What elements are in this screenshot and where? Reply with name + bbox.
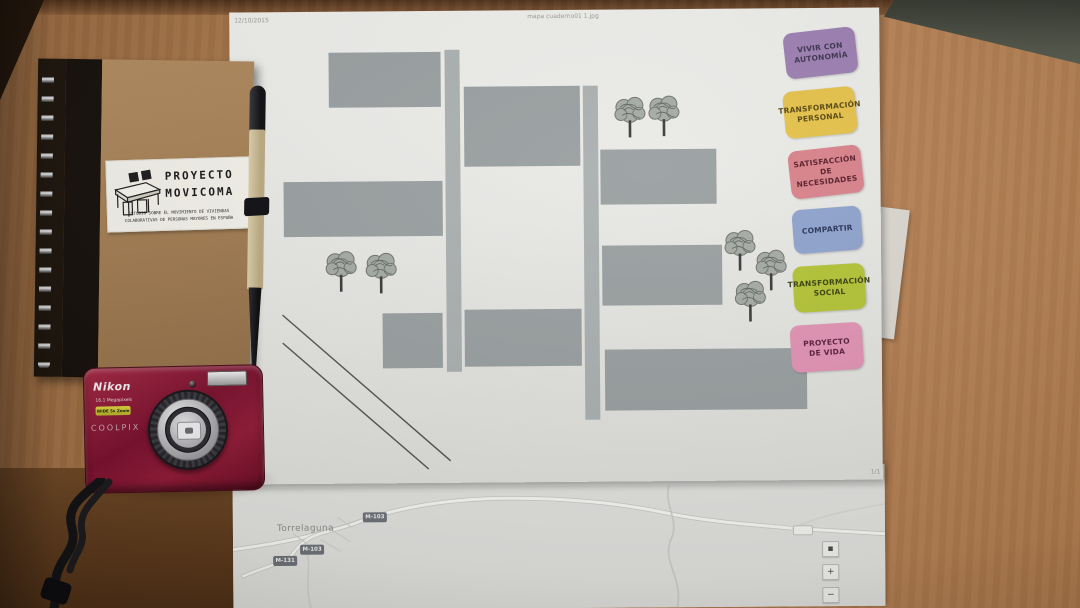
sticky-label-transformacion-personal: TRANSFORMACIÓN PERSONAL: [782, 86, 858, 140]
building-block: [600, 149, 716, 205]
printed-map-sheet: https://drive.google.com/drive/folders/0…: [233, 464, 886, 608]
railway-lines: [276, 309, 457, 475]
lens-aperture: [177, 421, 201, 439]
zoom-out-button-icon: −: [822, 587, 839, 603]
nikon-brand-logo: Nikon: [93, 380, 131, 394]
sticky-label-satisfaccion-de-necesidades: SATISFACCIÓN DE NECESIDADES: [787, 144, 865, 200]
photo-desk-scene: https://drive.google.com/drive/folders/0…: [0, 0, 1080, 608]
pen-clip: [244, 197, 269, 216]
lens-reflection: [185, 428, 193, 434]
pegman-button-icon: ▪: [822, 541, 839, 557]
map-roads-graphic: [233, 484, 886, 608]
street-strip: [583, 86, 601, 420]
print-header-filename: mapa cuaderno01 1.jpg: [527, 13, 599, 21]
nikon-coolpix-camera: Nikon 16.1 Megapixels WIDE 5x Zoom COOLP…: [83, 364, 266, 494]
camera-flash-icon: [207, 370, 247, 386]
print-header-date: 12/10/2015: [234, 17, 269, 24]
building-block: [602, 245, 722, 306]
sticky-label-proyecto-de-vida: PROYECTO DE VIDA: [789, 322, 864, 373]
building-block: [283, 181, 442, 237]
zoom-in-button-icon: +: [822, 564, 839, 580]
sticker-subtitle: ESTUDIO SOBRE EL MOVIMIENTO DE VIVIENDAS…: [112, 207, 246, 224]
road-badge-m103-2: M-103: [300, 545, 324, 555]
cover-black-band: [62, 59, 102, 377]
building-block: [464, 309, 581, 367]
printed-diagram-sheet: 12/10/2015 mapa cuaderno01 1.jpg 1/1: [229, 7, 883, 484]
tree-icon: [325, 248, 357, 294]
print-page-indicator: 1/1: [871, 468, 881, 475]
camera-strap: [26, 478, 141, 608]
megapixels-label: 16.1 Megapixels: [95, 398, 132, 404]
pen: [244, 85, 268, 370]
dark-floor-topright: [884, 0, 1080, 64]
spiral-binding: [34, 59, 66, 377]
tree-icon: [724, 226, 756, 272]
movicoma-sticker: PROYECTO MOVICOMA ESTUDIO SOBRE EL MOVIM…: [105, 156, 251, 232]
sticker-title: PROYECTO MOVICOMA: [165, 167, 235, 202]
sticky-label-compartir: COMPARTIR: [791, 205, 863, 254]
map-canvas: Torrelaguna M-103 M-103 M-131 ▪ + −: [233, 484, 886, 608]
tree-icon: [648, 92, 680, 138]
map-town-label: Torrelaguna: [277, 524, 334, 534]
road-badge-blank: [793, 525, 813, 535]
sticky-label-transformacion-social: TRANSFORMACIÓN SOCIAL: [792, 263, 867, 313]
camera-lens-icon: [147, 389, 229, 471]
spiral-notebook: PROYECTO MOVICOMA ESTUDIO SOBRE EL MOVIM…: [34, 59, 254, 380]
spiral-coils-icon: [38, 67, 54, 369]
road-badge-m103: M-103: [363, 512, 387, 522]
tree-icon: [365, 249, 397, 295]
map-zoom-controls: ▪ + −: [822, 541, 839, 603]
sticky-label-vivir-con-autonomia: VIVIR CON AUTONOMÍA: [782, 26, 859, 80]
pen-cap: [249, 85, 266, 133]
building-block: [328, 52, 440, 108]
tree-icon: [614, 93, 646, 139]
coolpix-model-label: COOLPIX: [91, 423, 140, 433]
pen-tip: [246, 287, 263, 370]
tree-icon: [734, 277, 766, 323]
building-block: [605, 348, 807, 411]
road-badge-m131: M-131: [273, 556, 297, 566]
building-block: [464, 86, 581, 167]
zoom-spec-badge: WIDE 5x Zoom: [96, 406, 131, 416]
